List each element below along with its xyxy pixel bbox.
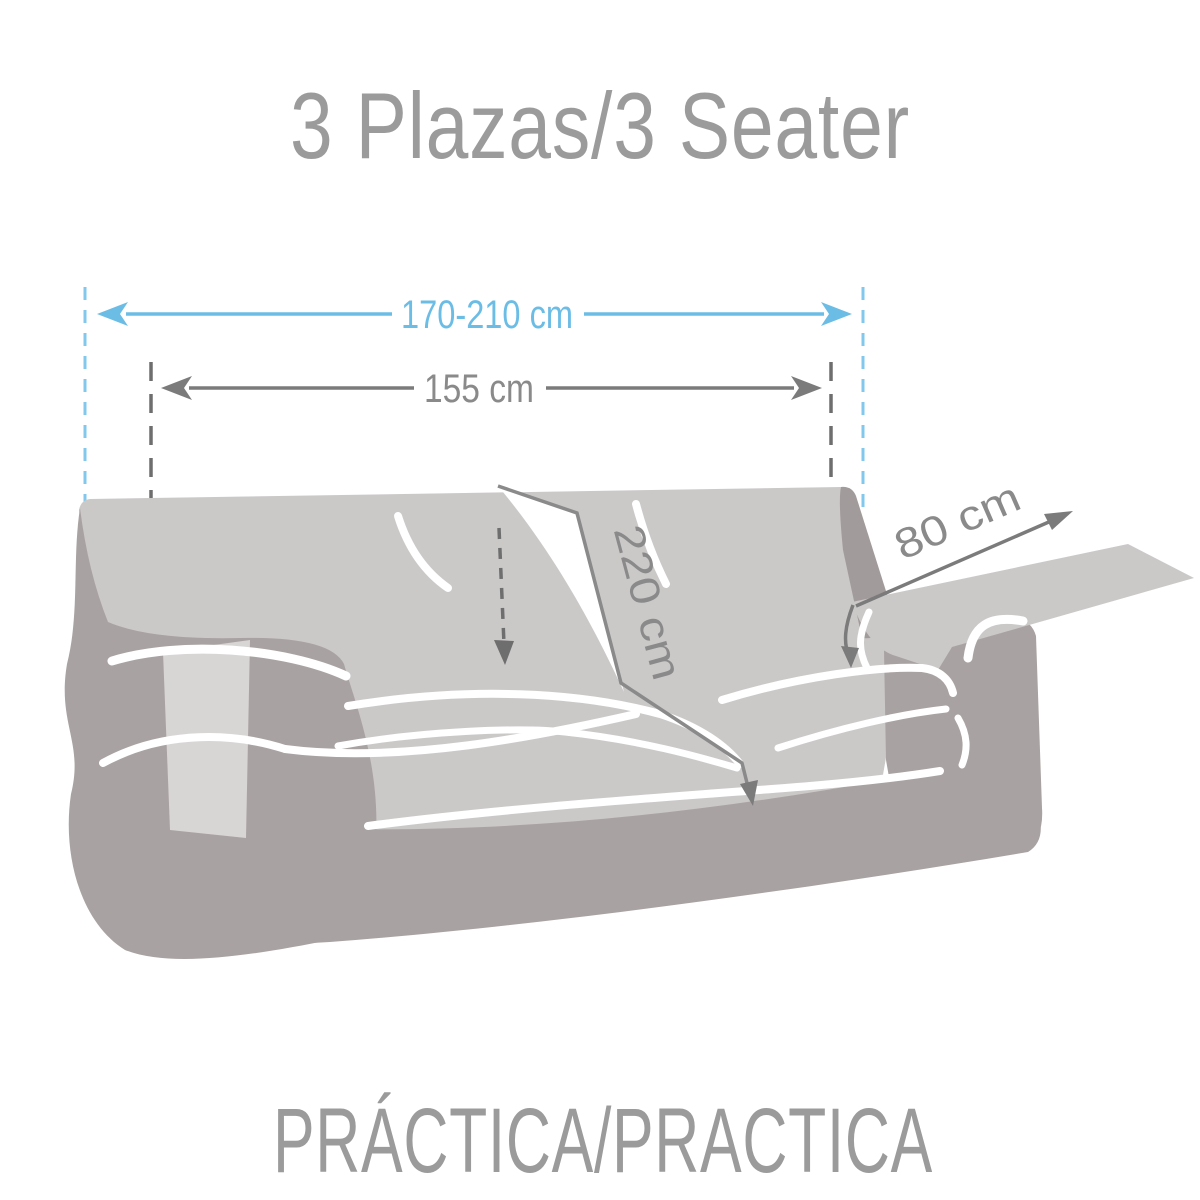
arrow-left-icon <box>97 302 128 326</box>
fitted-width-measurement: 155 cm <box>151 362 831 506</box>
diagram-canvas: 3 Plazas/3 Seater 170-210 cm 155 cm <box>0 0 1200 1200</box>
total-width-value: 170-210 cm <box>401 293 573 337</box>
arm-flap-value: 80 cm <box>887 473 1027 569</box>
arrow-up-right-icon <box>1044 511 1073 530</box>
arrow-right-icon <box>821 302 852 326</box>
arrow-right-icon <box>791 376 822 400</box>
arrow-left-icon <box>161 376 192 400</box>
page-title: 3 Plazas/3 Seater <box>290 73 910 178</box>
fitted-width-value: 155 cm <box>424 367 534 411</box>
sofa-dimensions-diagram: 3 Plazas/3 Seater 170-210 cm 155 cm <box>0 0 1200 1200</box>
practica-label: PRÁCTICA/PRACTICA <box>273 1090 933 1192</box>
